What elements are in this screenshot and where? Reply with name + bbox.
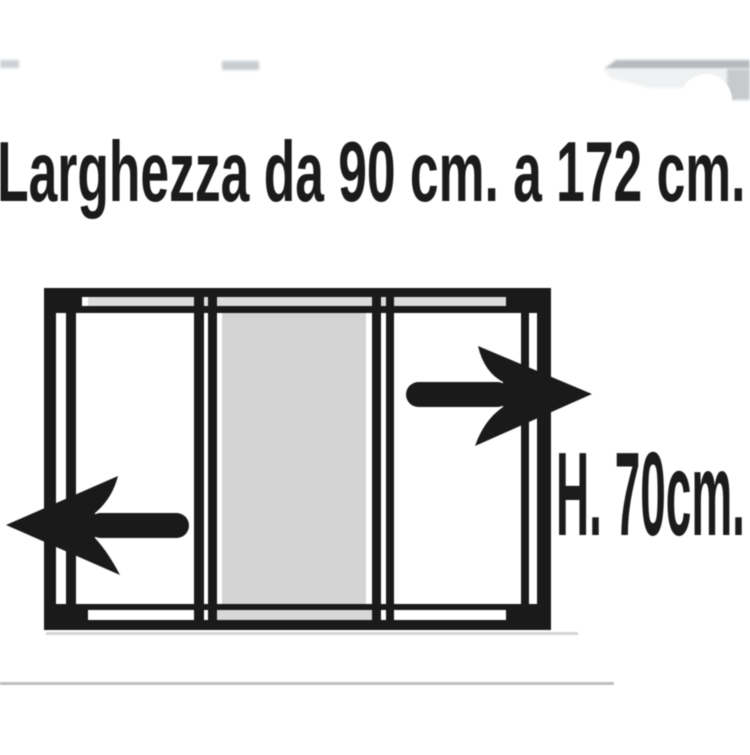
svg-text:H. 70cm.: H. 70cm. (556, 428, 745, 561)
svg-text:Larghezza da 90 cm. a 172 cm.: Larghezza da 90 cm. a 172 cm. (0, 124, 745, 220)
